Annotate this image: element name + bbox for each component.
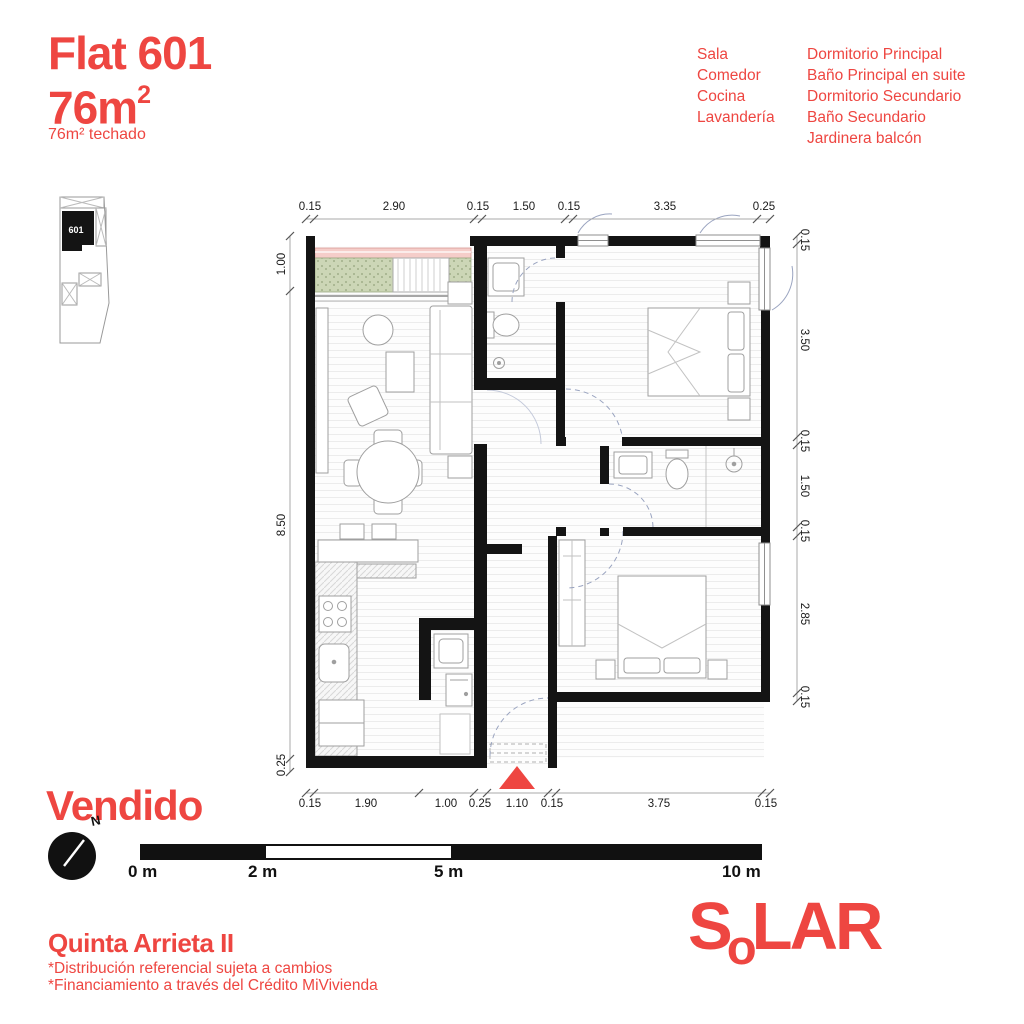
room-list-item: Dormitorio Secundario <box>807 86 966 107</box>
tv-console <box>316 308 328 473</box>
sofa <box>430 282 472 478</box>
dimension-label: 0.15 <box>299 798 321 810</box>
roofed-area-label: 76m² techado <box>48 126 146 144</box>
scale-segment-black-2 <box>451 846 760 858</box>
bath1-sink <box>488 258 524 296</box>
scale-label-0: 0 m <box>128 862 157 882</box>
entry-cabinet <box>440 714 470 754</box>
dimension-label: 1.00 <box>435 798 457 810</box>
dimension-label: 0.15 <box>798 229 810 251</box>
dimension-chain-left: 1.008.500.25 <box>276 232 294 776</box>
dimension-label: 3.75 <box>648 798 670 810</box>
dimension-chain-top: 0.152.900.151.500.153.350.25 <box>299 201 775 223</box>
kitchen-counter <box>315 562 364 756</box>
scale-label-5: 5 m <box>434 862 463 882</box>
closet-secondary <box>559 540 585 646</box>
dimension-label: 0.15 <box>755 798 777 810</box>
scale-label-2: 2 m <box>248 862 277 882</box>
scale-bar <box>140 844 762 860</box>
planter-gate <box>393 258 449 292</box>
project-name: Quinta Arrieta II <box>48 928 234 959</box>
window-corner-top <box>696 235 760 246</box>
room-list-item: Lavandería <box>697 107 775 128</box>
key-plan: 601 <box>48 185 126 353</box>
dimension-label: 1.50 <box>798 475 810 497</box>
disclaimer-2: *Financiamiento a través del Crédito MiV… <box>48 977 378 995</box>
room-list-item: Dormitorio Principal <box>807 44 966 65</box>
compass: N <box>40 808 120 888</box>
floor-plan: 0.152.900.151.500.153.350.250.151.901.00… <box>270 195 814 813</box>
dimension-label: 0.15 <box>541 798 563 810</box>
dimension-label: 1.00 <box>276 253 288 275</box>
unit-title: Flat 601 <box>48 30 211 76</box>
room-list-right: Dormitorio PrincipalBaño Principal en su… <box>807 44 966 149</box>
room-list-item: Baño Principal en suite <box>807 65 966 86</box>
dimension-label: 2.85 <box>798 603 810 625</box>
scale-label-10: 10 m <box>722 862 761 882</box>
room-list-item: Sala <box>697 44 775 65</box>
bath2-sink <box>614 452 652 478</box>
window-top-small <box>578 235 608 246</box>
dimension-label: 1.10 <box>506 798 528 810</box>
washer <box>434 634 468 668</box>
dimension-label: 0.15 <box>798 686 810 708</box>
logo-s: S <box>688 889 730 964</box>
dimension-label: 0.25 <box>276 754 288 776</box>
compass-north-label: N <box>90 812 102 829</box>
dimension-label: 0.15 <box>299 201 321 213</box>
room-list-item: Jardinera balcón <box>807 128 966 149</box>
disclaimer-1: *Distribución referencial sujeta a cambi… <box>48 960 332 978</box>
bath1-toilet <box>486 312 519 338</box>
area-superscript: 2 <box>137 81 150 109</box>
coffee-table <box>386 352 414 392</box>
dimension-label: 2.90 <box>383 201 405 213</box>
page-title: Flat 601 76m2 <box>48 30 211 130</box>
window-bedroom2 <box>759 543 770 605</box>
fridge <box>319 700 364 746</box>
dimension-label: 0.15 <box>798 520 810 542</box>
dimension-label: 0.15 <box>558 201 580 213</box>
dimension-label: 1.50 <box>513 201 535 213</box>
flyer-canvas: Flat 601 76m2 76m² techado SalaComedorCo… <box>0 0 1024 1024</box>
dimension-label: 3.50 <box>798 329 810 351</box>
window-corner-right <box>759 248 770 310</box>
logo-lar: LAR <box>752 889 881 964</box>
room-list-item: Comedor <box>697 65 775 86</box>
dimension-label: 3.35 <box>654 201 676 213</box>
dimension-label: 0.25 <box>753 201 775 213</box>
bath2-toilet <box>666 450 688 489</box>
dimension-chain-right: 0.153.500.151.500.152.850.15 <box>793 229 810 708</box>
dimension-label: 1.90 <box>355 798 377 810</box>
laundry-appliance <box>446 674 472 706</box>
room-list-item: Cocina <box>697 86 775 107</box>
unit-area: 76m2 <box>48 76 211 130</box>
dimension-chain-bottom: 0.151.901.000.251.100.153.750.15 <box>299 789 777 810</box>
room-list-item: Baño Secundario <box>807 107 966 128</box>
keyplan-unit-number: 601 <box>68 225 83 235</box>
scale-segment-black-1 <box>142 846 266 858</box>
side-table <box>363 315 393 345</box>
logo-o: o <box>727 921 754 975</box>
kitchen-sink <box>319 644 349 682</box>
brand-logo: SoLAR <box>688 893 880 967</box>
dimension-label: 8.50 <box>276 514 288 536</box>
room-list-left: SalaComedorCocinaLavandería <box>697 44 775 128</box>
dimension-label: 0.15 <box>798 430 810 452</box>
dimension-label: 0.15 <box>467 201 489 213</box>
dimension-label: 0.25 <box>469 798 491 810</box>
stove <box>319 596 351 632</box>
